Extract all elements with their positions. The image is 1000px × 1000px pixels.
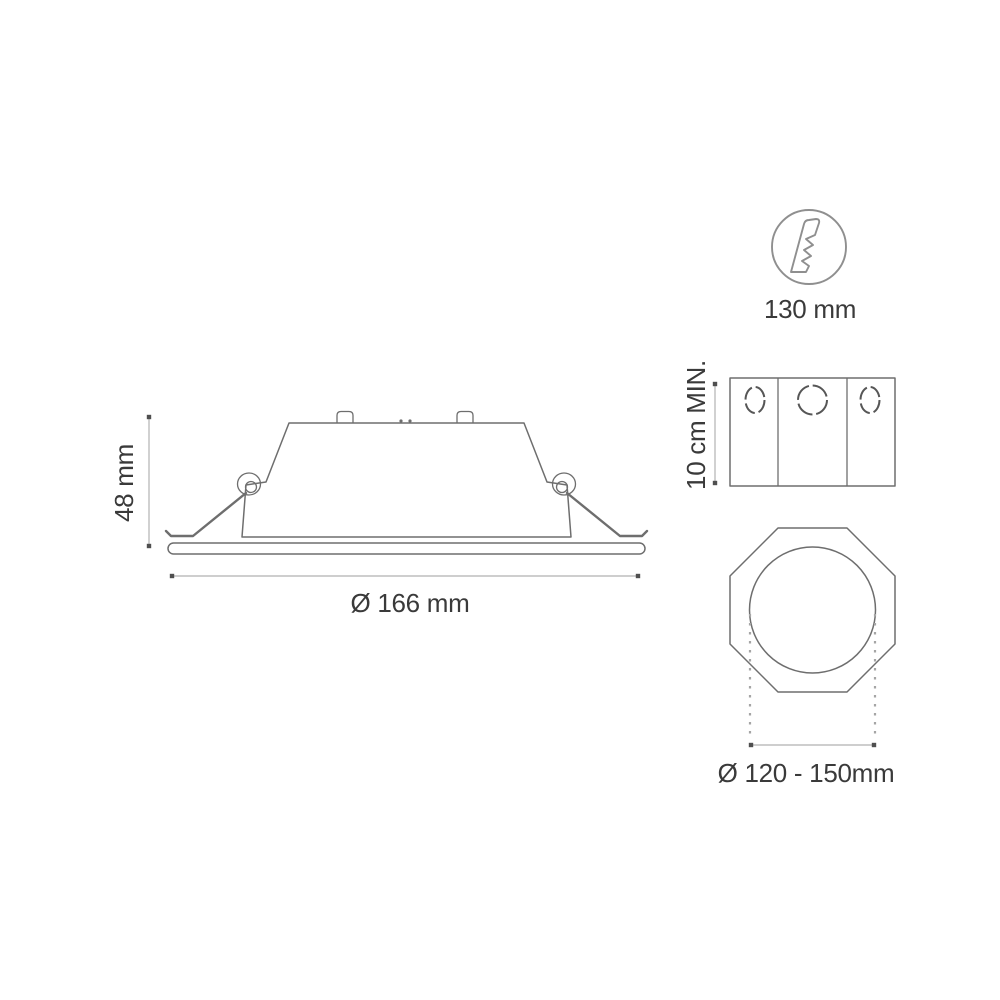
- dim-cutout: Ø 120 - 150mm: [718, 743, 895, 788]
- dimensional-drawing-canvas: 48 mm Ø 166 mm 130 mm: [0, 0, 1000, 1000]
- spring-clip-pivot-right-inner: [557, 482, 568, 493]
- dim-clearance: 10 cm MIN.: [681, 360, 717, 490]
- downlight-side-view: [166, 412, 647, 555]
- center-mark-dot: [408, 419, 411, 422]
- dim-height: 48 mm: [109, 415, 151, 548]
- center-mark-dot: [399, 419, 402, 422]
- dim-end-marker: [713, 481, 717, 485]
- dimensional-drawing: 48 mm Ø 166 mm 130 mm: [0, 0, 1000, 1000]
- knockout-hole-left: [746, 387, 765, 413]
- junction-box-outline: [730, 378, 895, 486]
- knockout-hole-right: [861, 387, 880, 413]
- mounting-tab-left: [337, 412, 353, 424]
- downlight-housing-outline: [242, 423, 571, 537]
- dim-diameter: Ø 166 mm: [170, 574, 640, 618]
- dim-end-marker: [147, 415, 151, 419]
- dim-diameter-label: Ø 166 mm: [351, 588, 470, 618]
- cutout-octagon: [730, 528, 895, 692]
- hole-saw-blade: [791, 219, 819, 272]
- dim-cutout-label: Ø 120 - 150mm: [718, 758, 895, 788]
- hole-saw-icon: 130 mm: [764, 210, 856, 324]
- dim-end-marker: [749, 743, 753, 747]
- dim-end-marker: [170, 574, 174, 578]
- ceiling-cutout-view: [730, 528, 895, 737]
- junction-box: [730, 378, 895, 486]
- knockout-hole-center: [798, 386, 827, 415]
- spring-clip-wire-left: [166, 493, 246, 536]
- cutout-circle: [750, 547, 876, 673]
- dim-height-label: 48 mm: [109, 444, 139, 522]
- dim-end-marker: [636, 574, 640, 578]
- dim-end-marker: [147, 544, 151, 548]
- spring-clip-wire-right: [567, 493, 647, 536]
- mounting-tab-right: [457, 412, 473, 424]
- dim-end-marker: [872, 743, 876, 747]
- trim-flange: [168, 543, 645, 554]
- dim-end-marker: [713, 382, 717, 386]
- dim-clearance-label: 10 cm MIN.: [681, 360, 711, 490]
- spring-clip-pivot-left-inner: [246, 482, 257, 493]
- hole-saw-label: 130 mm: [764, 294, 856, 324]
